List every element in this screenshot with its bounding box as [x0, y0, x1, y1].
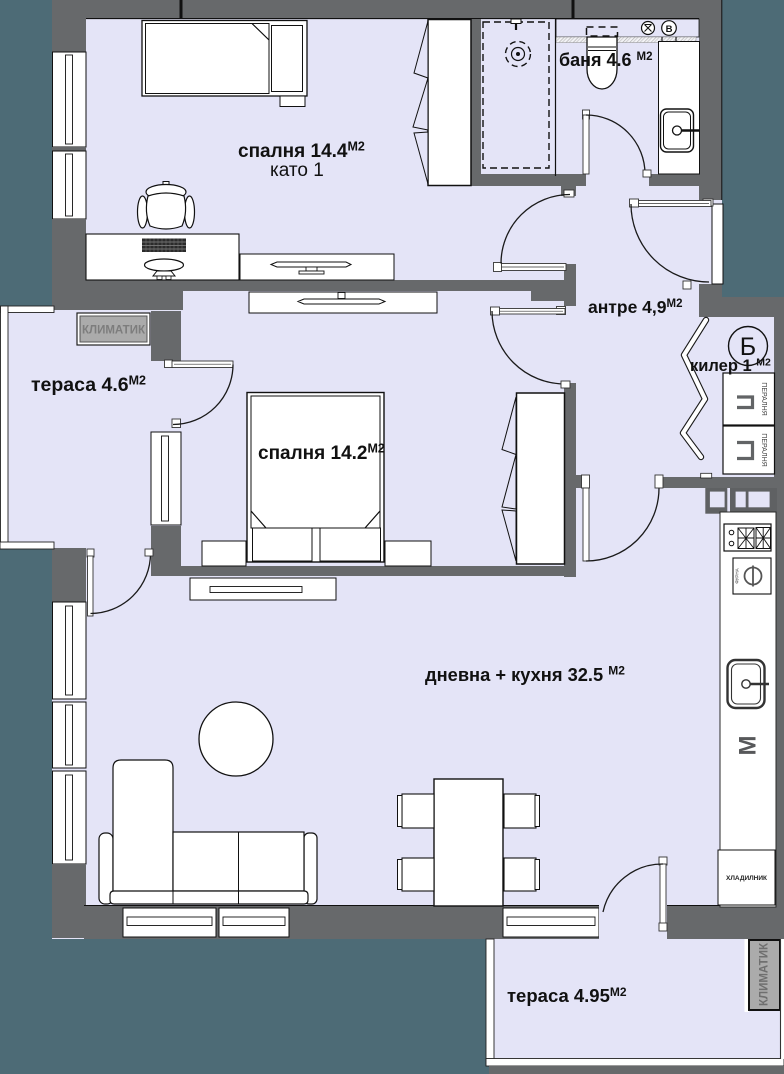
- svg-text:спалня 14.2М2: спалня 14.2М2: [258, 442, 385, 465]
- svg-text:Б: Б: [740, 333, 756, 361]
- svg-text:КЛИМАТИК: КЛИМАТИК: [82, 325, 146, 337]
- svg-text:ФУРНА: ФУРНА: [735, 568, 740, 583]
- svg-text:ПЕРАЛНЯ: ПЕРАЛНЯ: [760, 433, 767, 466]
- svg-text:М: М: [734, 736, 761, 756]
- svg-text:КЛИМАТИК: КЛИМАТИК: [759, 942, 771, 1006]
- svg-text:тераса 4.95М2: тераса 4.95М2: [507, 985, 627, 1006]
- svg-text:В: В: [666, 24, 673, 35]
- svg-text:спалня 14.4М2: спалня 14.4М2: [238, 140, 365, 163]
- svg-text:дневна + кухня 32.5 М2: дневна + кухня 32.5 М2: [425, 664, 625, 686]
- svg-text:ПЕРАЛНЯ: ПЕРАЛНЯ: [760, 382, 767, 415]
- svg-text:като 1: като 1: [270, 160, 324, 181]
- svg-text:ХЛАДИЛНИК: ХЛАДИЛНИК: [726, 875, 767, 882]
